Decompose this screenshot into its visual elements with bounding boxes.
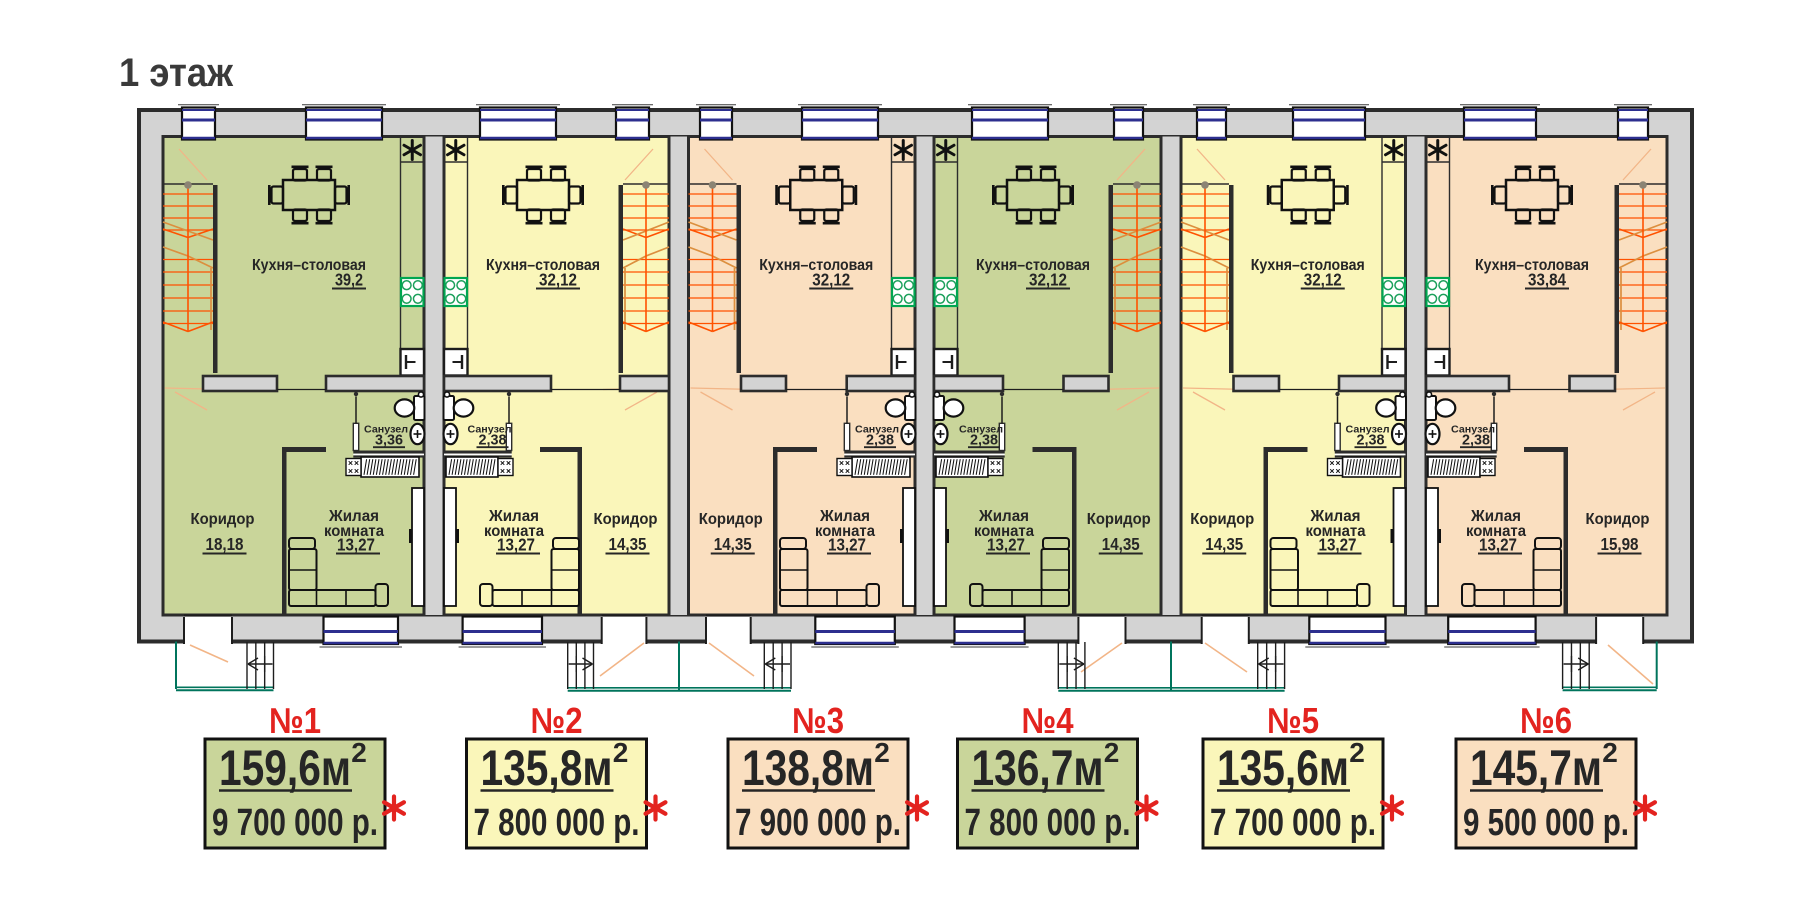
svg-text:33,84: 33,84 [1528, 270, 1566, 290]
svg-text:32,12: 32,12 [1304, 270, 1342, 290]
svg-text:13,27: 13,27 [1319, 535, 1357, 555]
svg-text:135,6м: 135,6м [1217, 740, 1349, 796]
svg-text:Коридор: Коридор [699, 511, 763, 528]
svg-text:№2: №2 [531, 700, 583, 741]
svg-text:7 800 000 р.: 7 800 000 р. [965, 802, 1131, 844]
svg-text:32,12: 32,12 [1029, 270, 1067, 290]
svg-text:№5: №5 [1267, 700, 1319, 741]
svg-text:№6: №6 [1520, 700, 1572, 741]
svg-text:9 700 000 р.: 9 700 000 р. [212, 802, 378, 844]
svg-text:7 800 000 р.: 7 800 000 р. [474, 802, 640, 844]
svg-text:Коридор: Коридор [1586, 511, 1650, 528]
svg-text:№4: №4 [1022, 700, 1074, 741]
svg-text:7 900 000 р.: 7 900 000 р. [735, 802, 901, 844]
svg-text:2,38: 2,38 [479, 433, 507, 449]
svg-text:15,98: 15,98 [1601, 534, 1639, 554]
svg-text:14,35: 14,35 [1102, 534, 1140, 554]
svg-text:Коридор: Коридор [191, 511, 255, 528]
svg-text:2: 2 [1349, 737, 1365, 768]
svg-text:2: 2 [613, 737, 629, 768]
svg-text:№1: №1 [269, 700, 321, 741]
svg-text:2,38: 2,38 [1462, 433, 1490, 449]
svg-text:18,18: 18,18 [206, 534, 244, 554]
svg-text:13,27: 13,27 [497, 535, 535, 555]
svg-text:Коридор: Коридор [1087, 511, 1151, 528]
svg-text:135,8м: 135,8м [481, 740, 613, 796]
svg-text:Коридор: Коридор [594, 511, 658, 528]
svg-text:13,27: 13,27 [987, 535, 1025, 555]
svg-text:Коридор: Коридор [1190, 511, 1254, 528]
svg-text:32,12: 32,12 [812, 270, 850, 290]
svg-text:№3: №3 [792, 700, 844, 741]
svg-text:2: 2 [874, 737, 890, 768]
svg-text:32,12: 32,12 [539, 270, 577, 290]
svg-text:2: 2 [1104, 737, 1120, 768]
svg-text:14,35: 14,35 [714, 534, 752, 554]
svg-text:2,38: 2,38 [970, 433, 998, 449]
svg-text:7 700 000 р.: 7 700 000 р. [1210, 802, 1376, 844]
svg-text:2,38: 2,38 [1357, 433, 1385, 449]
svg-text:13,27: 13,27 [828, 535, 866, 555]
svg-text:14,35: 14,35 [1205, 534, 1243, 554]
svg-text:1 этаж: 1 этаж [119, 51, 234, 95]
svg-text:145,7м: 145,7м [1470, 740, 1602, 796]
svg-text:2: 2 [1602, 737, 1618, 768]
svg-text:9 500 000 р.: 9 500 000 р. [1463, 802, 1629, 844]
svg-text:138,8м: 138,8м [742, 740, 874, 796]
svg-text:13,27: 13,27 [1479, 535, 1517, 555]
svg-text:2: 2 [351, 737, 367, 768]
svg-text:136,7м: 136,7м [972, 740, 1104, 796]
svg-text:13,27: 13,27 [337, 535, 375, 555]
svg-text:3,36: 3,36 [375, 433, 403, 449]
svg-text:2,38: 2,38 [866, 433, 894, 449]
svg-text:14,35: 14,35 [609, 534, 647, 554]
svg-text:39,2: 39,2 [335, 270, 363, 290]
svg-text:159,6м: 159,6м [219, 740, 351, 796]
